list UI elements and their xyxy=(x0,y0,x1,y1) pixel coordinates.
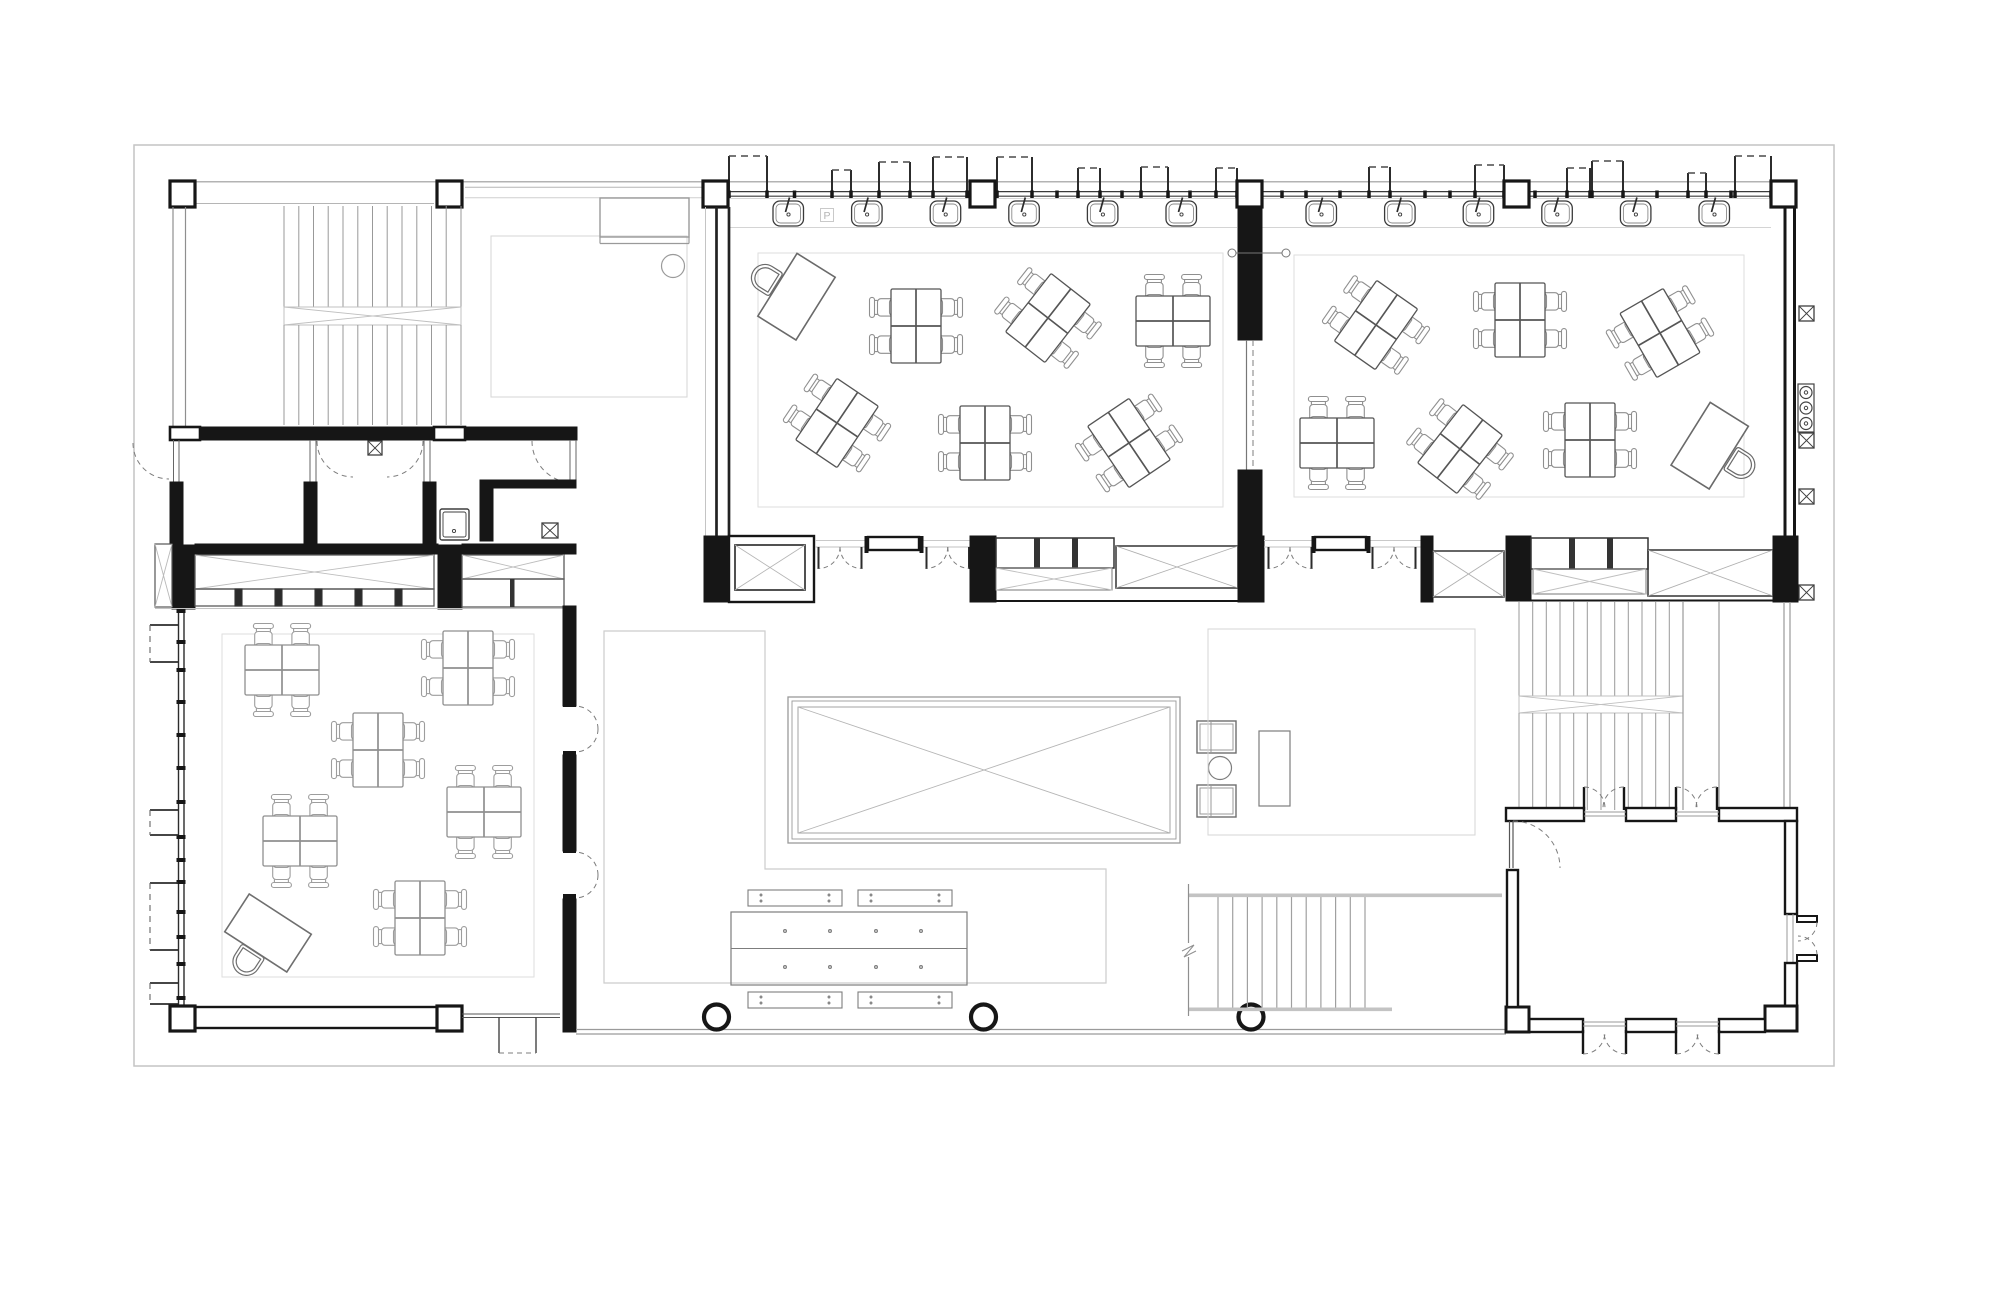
svg-text:P: P xyxy=(823,210,830,222)
